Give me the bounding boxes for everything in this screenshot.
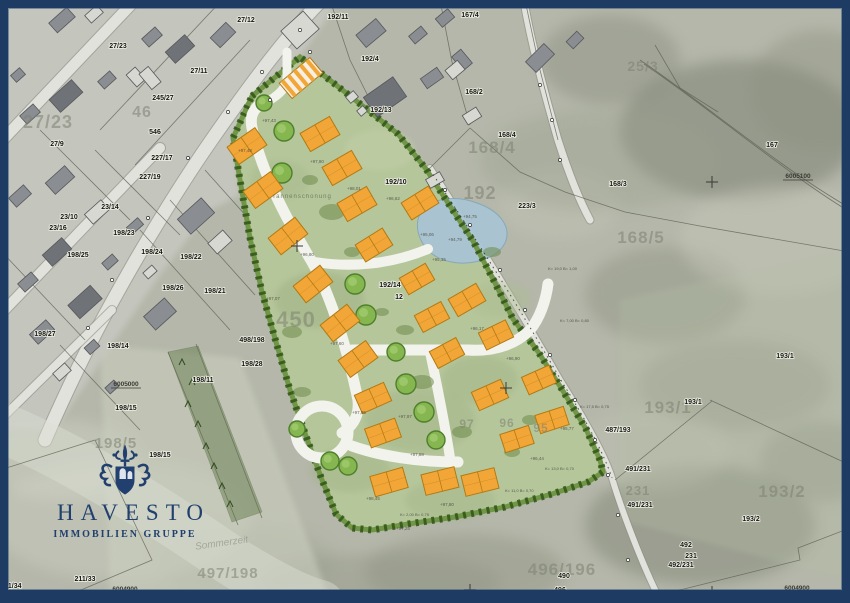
tree-icon (321, 452, 339, 470)
tree-icon (345, 274, 365, 294)
tree-icon (414, 402, 434, 422)
tree-icon (289, 421, 305, 437)
map-label: 168/5 (617, 228, 665, 247)
site-plan-page: 27/2346192168/4168/525/3193/1193/2231496… (0, 0, 850, 603)
map-label: 492 (680, 542, 692, 549)
map-label: 198/15 (115, 405, 137, 412)
map-label: K= 13,0 B= 0,70 (545, 466, 575, 471)
logo-subtitle: IMMOBILIEN GRUPPE (50, 529, 200, 540)
map-label: 211/33 (74, 576, 95, 583)
map-label: 97 (459, 417, 474, 431)
map-label: 198/25 (67, 252, 89, 259)
map-label: 167 (766, 142, 778, 149)
map-label: 192 (463, 183, 496, 203)
map-label: 487/193 (605, 427, 630, 434)
logo-name: HAVESTO (57, 500, 200, 526)
map-label: +97,88 (410, 452, 424, 457)
map-label: +97,25 (396, 526, 410, 531)
map-label: K= 7,00 B= 0,80 (560, 318, 590, 323)
map-label: 168/4 (498, 132, 516, 139)
map-label: 23/16 (49, 225, 67, 232)
map-label: +98,45 (366, 496, 380, 501)
map-label: 223/3 (518, 203, 536, 210)
map-label: K= 11,0 B= 0,70 (505, 488, 534, 493)
map-label: 168/4 (468, 138, 516, 157)
map-label: 192/10 (385, 179, 407, 186)
map-label: +96,17 (470, 326, 484, 331)
map-label: 198/11 (192, 377, 213, 384)
map-label: 27/9 (50, 141, 64, 148)
map-label: +98,01 (347, 186, 361, 191)
map-label: +94,79 (448, 237, 462, 242)
map-label: +97,07 (266, 296, 280, 301)
map-label: 192/13 (370, 107, 392, 114)
map-label: +97,95 (352, 410, 366, 415)
map-label: 198/27 (34, 331, 56, 338)
map-label: 27/23 (23, 112, 73, 132)
map-label: 25/3 (627, 58, 658, 74)
map-label: 192/4 (361, 56, 379, 63)
map-label: 491/231 (627, 502, 652, 509)
map-label: 198/23 (113, 230, 135, 237)
map-label: 12 (395, 294, 403, 301)
map-label: Tannenschonung (272, 194, 332, 200)
tree-icon (274, 121, 294, 141)
map-label: 198/28 (241, 361, 263, 368)
map-label: 193/2 (742, 516, 760, 523)
heraldic-crest-icon (97, 444, 153, 498)
map-label: +97,48 (238, 148, 252, 153)
map-label: 198/24 (141, 249, 163, 256)
map-label: +95,77 (560, 426, 574, 431)
map-label: 231 (626, 483, 651, 498)
map-label: K= 17,5 B= 0,75 (580, 404, 610, 409)
tree-icon (427, 431, 445, 449)
map-label: 193/2 (758, 482, 806, 501)
map-label: +97,80 (440, 502, 454, 507)
map-label: 245/27 (152, 95, 174, 102)
map-label: +94,75 (463, 214, 477, 219)
map-label: 490 (558, 573, 570, 580)
tree-icon (396, 374, 416, 394)
map-label: 198/26 (162, 285, 184, 292)
map-label: 231 (685, 553, 697, 560)
map-label: K= 2,00 B= 0,75 (400, 512, 430, 517)
map-label: +97,97 (398, 414, 412, 419)
map-label: +96,80 (300, 252, 314, 257)
tree-icon (256, 95, 272, 111)
map-label: K= 19,0 B= 1,00 (548, 266, 578, 271)
map-label: 23/10 (60, 214, 78, 221)
map-label: +96,62 (386, 196, 400, 201)
map-label: 198/21 (204, 288, 226, 295)
map-label: 46 (132, 104, 152, 121)
map-label: +95,06 (420, 232, 434, 237)
map-label: 198/14 (107, 343, 129, 350)
map-label: 23/14 (101, 204, 119, 211)
map-label: +97,43 (262, 118, 276, 123)
map-label: 193/1 (684, 399, 702, 406)
map-label: +95,35 (432, 257, 446, 262)
map-label: 492/231 (668, 562, 693, 569)
map-label: 27/12 (237, 17, 255, 24)
company-logo: HAVESTO IMMOBILIEN GRUPPE (50, 444, 200, 540)
map-label: +97,90 (310, 159, 324, 164)
map-label: +96,44 (530, 456, 544, 461)
map-label: 167/4 (461, 12, 479, 19)
map-label: 168/3 (609, 181, 627, 188)
map-label: 227/19 (139, 174, 161, 181)
map-label: 193/1 (776, 353, 794, 360)
map-label: 450 (276, 307, 316, 332)
map-label: +97,60 (330, 341, 344, 346)
map-label: +96,90 (506, 356, 520, 361)
map-label: 95 (533, 421, 548, 435)
map-label: 491/231 (625, 466, 650, 473)
map-label: 227/17 (151, 155, 173, 162)
map-label: 6005000 (113, 381, 139, 388)
map-label: 497/198 (197, 565, 258, 582)
map-label: 27/23 (109, 43, 127, 50)
map-label: 96 (499, 416, 514, 430)
map-label: 27/11 (190, 68, 207, 75)
map-label: 498/198 (239, 337, 264, 344)
map-label: 6005100 (785, 173, 811, 180)
map-label: 198/22 (180, 254, 202, 261)
tree-icon (387, 343, 405, 361)
map-label: 546 (149, 129, 161, 136)
tree-icon (339, 457, 357, 475)
map-label: 192/14 (379, 282, 401, 289)
map-label: 168/2 (465, 89, 483, 96)
map-label: 192/11 (327, 14, 348, 21)
